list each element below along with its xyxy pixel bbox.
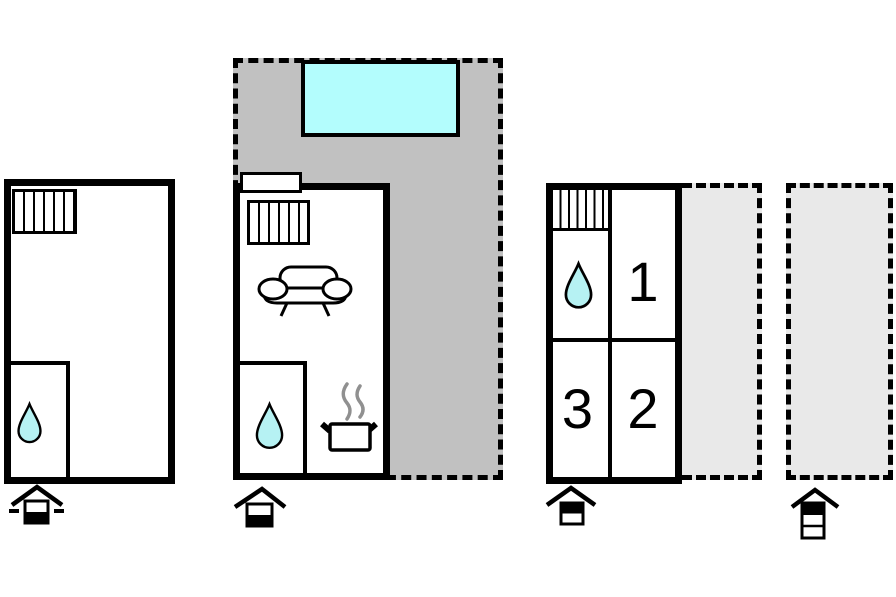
- swimming-pool: [301, 60, 460, 137]
- storey-indicator-middle-icon: [231, 486, 289, 530]
- storey-indicator-right-icon: [543, 485, 599, 529]
- window-hatch: [12, 189, 77, 234]
- storey-indicator-outdoor-icon: [788, 486, 842, 542]
- room-divider-horizontal: [553, 338, 675, 342]
- window-hatch: [247, 200, 310, 245]
- water-drop-icon: [563, 260, 594, 312]
- steam-icon: [357, 386, 363, 417]
- room-label-1: 1: [610, 252, 676, 312]
- water-drop-icon: [16, 399, 43, 448]
- window-hatch: [553, 190, 610, 231]
- window: [240, 172, 302, 193]
- room-label-3: 3: [547, 379, 608, 439]
- cooking-pot-icon: [320, 380, 378, 452]
- storey-indicator-left-icon: [6, 484, 68, 528]
- water-drop-icon: [254, 401, 285, 452]
- sofa-icon: [257, 264, 353, 318]
- room-label-2: 2: [610, 379, 676, 439]
- terrace-right-1: [682, 183, 762, 480]
- floorplan-canvas: 1 3 2: [0, 0, 896, 597]
- steam-icon: [343, 384, 350, 419]
- terrace-right-2: [786, 183, 893, 480]
